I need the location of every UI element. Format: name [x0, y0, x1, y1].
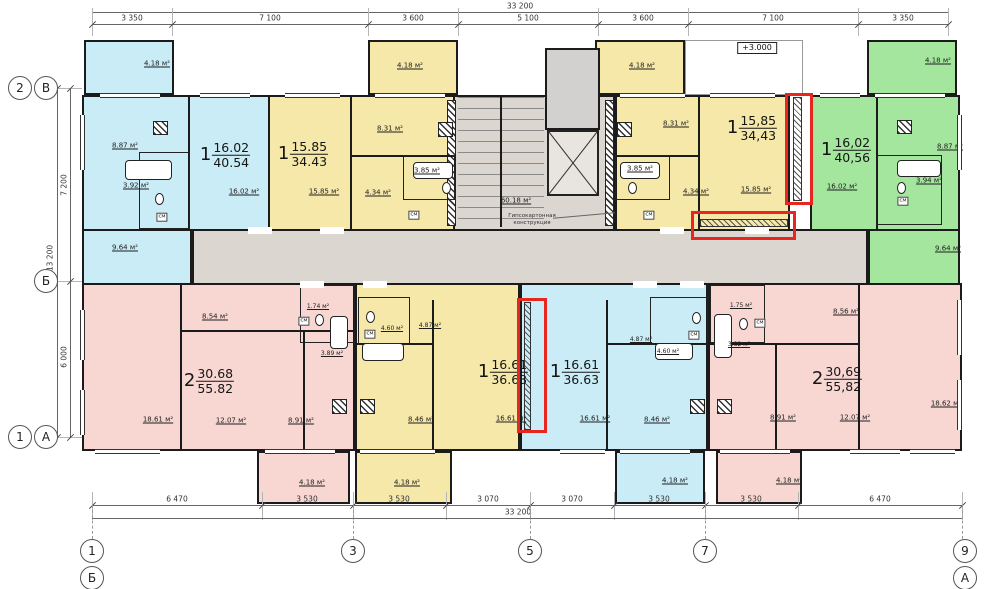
dim-top: 3 350 — [892, 14, 913, 22]
dim-bottom: 3 530 — [388, 495, 409, 503]
living-area: 16.61 — [562, 358, 600, 373]
apartment-label: 116.0240.54 — [200, 141, 250, 170]
window-marker — [80, 115, 85, 170]
door-opening — [633, 281, 657, 288]
closet-label: см — [897, 197, 908, 206]
room-area-label: 18.61 м² — [143, 417, 173, 424]
closet-label: см — [364, 330, 375, 339]
partition — [350, 95, 352, 231]
axis-bubble-a-bottom: А — [953, 566, 977, 589]
axis-bubble-b-bottom: Б — [80, 566, 104, 589]
rooms-count: 1 — [278, 145, 289, 163]
dim-bottom: 3 530 — [648, 495, 669, 503]
window-marker — [200, 93, 250, 98]
vent-box — [438, 122, 453, 137]
room-area-label: 8.54 м² — [202, 314, 228, 321]
balcony-north-blue — [84, 40, 174, 95]
window-marker — [720, 449, 790, 454]
dim-bottom: 3 070 — [561, 495, 582, 503]
elevator-cross-icon — [549, 132, 597, 194]
axis-bubble-2: 2 — [8, 76, 32, 100]
balcony-area-label: 4.18 м² — [397, 63, 423, 70]
dim-line-bottom-overall — [92, 518, 962, 519]
room-area-label: 15.85 м² — [741, 187, 771, 194]
rooms-count: 1 — [727, 119, 738, 137]
axis-bubble-v: В — [34, 76, 58, 100]
toilet-icon — [155, 193, 164, 205]
dim-line-top-segments — [92, 24, 948, 25]
closet-label: см — [688, 331, 699, 340]
axis-bubble-9: 9 — [953, 539, 977, 563]
dim-bottom: 3 530 — [740, 495, 761, 503]
highlight-rect-corridor — [691, 211, 796, 240]
vent-shaft-right — [605, 100, 614, 226]
room-area-label: 4.34 м² — [683, 189, 709, 196]
apartment-label: 230.6855.82 — [184, 367, 234, 396]
dim-left-lower: 6 000 — [60, 346, 68, 367]
window-marker — [957, 115, 962, 170]
closet-label: см — [156, 213, 167, 222]
garbage-room — [545, 48, 600, 130]
apartment-label: 116,0240,56 — [821, 136, 871, 165]
room-area-label: 8.91 м² — [770, 415, 796, 422]
living-area: 15.85 — [290, 140, 328, 155]
window-marker — [850, 449, 900, 454]
dim-left-upper: 7 200 — [60, 174, 68, 195]
vent-box — [360, 399, 375, 414]
toilet-icon — [628, 182, 637, 194]
room-area-label: 9.64 м² — [935, 246, 961, 253]
bathtub-icon — [362, 343, 404, 361]
room-area-label: 1.74 м² — [307, 304, 329, 310]
floor-plan: Мусоро-сборнаякамера 4.25 м² 60.18 м² Ги… — [0, 0, 1000, 589]
balcony-north-green — [867, 40, 957, 95]
partition — [303, 330, 305, 451]
bathtub-icon — [330, 316, 348, 349]
balcony-area-label: 4.18 м² — [925, 58, 951, 65]
room-area-label: 16.61 м² — [580, 416, 610, 423]
axis-bubble-1-left: 1 — [8, 425, 32, 449]
axis-bubble-7: 7 — [693, 539, 717, 563]
closet-label: см — [408, 211, 419, 220]
window-marker — [265, 449, 335, 454]
room-area-label: 4.60 м² — [657, 349, 679, 355]
room-area-label: 12.07 м² — [216, 418, 246, 425]
closet-label: см — [643, 211, 654, 220]
dim-line-left-segments — [70, 88, 71, 437]
axis-bubble-b-left: Б — [34, 269, 58, 293]
apartment-label: 115.8534.43 — [278, 140, 328, 169]
dim-bottom: 6 470 — [869, 495, 890, 503]
dim-bottom: 3 530 — [296, 495, 317, 503]
window-marker — [80, 390, 85, 435]
vent-box — [717, 399, 732, 414]
window-marker — [957, 300, 962, 355]
vent-box — [897, 120, 912, 134]
window-marker — [285, 93, 340, 98]
living-area: 30,69 — [824, 365, 862, 380]
axis-stem — [530, 505, 531, 539]
axis-stem — [962, 505, 963, 539]
room-area-label: 8.87 м² — [112, 143, 138, 150]
room-area-label: 3.89 м² — [321, 351, 343, 357]
room-area-label: 4.87 м² — [630, 337, 652, 343]
window-marker — [560, 449, 605, 454]
living-area: 16,02 — [833, 136, 871, 151]
rooms-count: 1 — [821, 141, 832, 159]
window-marker — [875, 93, 945, 98]
room-area-label: 3.85 м² — [627, 166, 653, 173]
room-area-label: 8.56 м² — [833, 309, 859, 316]
bathtub-icon — [897, 160, 941, 177]
dim-left-overall: 13 200 — [46, 245, 54, 271]
door-opening — [363, 281, 387, 288]
window-marker — [80, 310, 85, 360]
rooms-count: 2 — [812, 370, 823, 388]
room-area-label: 4.87 м² — [419, 323, 441, 329]
vent-box — [153, 121, 168, 135]
highlight-rect-wall-bottom — [517, 298, 547, 433]
balcony-area-label: 4.18 м² — [776, 478, 802, 485]
room-area-label: 8.31 м² — [377, 126, 403, 133]
balcony-area-label: 4.18 м² — [144, 61, 170, 68]
rooms-count: 1 — [200, 146, 211, 164]
toilet-icon — [692, 312, 701, 324]
window-marker — [375, 93, 445, 98]
balcony-area-label: 4.18 м² — [629, 63, 655, 70]
dim-line-bottom-segments — [92, 505, 962, 506]
dim-top: 7 100 — [259, 14, 280, 22]
living-area: 15,85 — [739, 114, 777, 129]
room-area-label: 9.64 м² — [112, 245, 138, 252]
room-area-label: 8.46 м² — [408, 417, 434, 424]
dim-top: 5 100 — [517, 14, 538, 22]
window-marker — [620, 93, 685, 98]
room-area-label: 1.75 м² — [730, 303, 752, 309]
toilet-icon — [442, 182, 451, 194]
dim-line-left-overall — [57, 88, 58, 437]
drywall-note: Гипсокартоннаяконструкция — [508, 213, 556, 227]
total-area: 40.54 — [212, 156, 250, 170]
dim-top: 7 100 — [762, 14, 783, 22]
partition — [180, 283, 182, 451]
axis-bubble-1-bottom: 1 — [80, 539, 104, 563]
bathtub-icon — [125, 160, 172, 180]
living-area: 30.68 — [196, 367, 234, 382]
apartment-top-left-blue-hall — [82, 229, 192, 285]
dim-bottom: 3 070 — [477, 495, 498, 503]
elevation-mark: +3.000 — [737, 42, 777, 54]
door-opening — [680, 281, 704, 288]
room-area-label: 3.85 м² — [414, 168, 440, 175]
total-area: 55,82 — [824, 380, 862, 394]
room-area-label: 8.46 м² — [644, 417, 670, 424]
partition — [775, 345, 777, 451]
room-area-label: 16.02 м² — [827, 184, 857, 191]
total-area: 40,56 — [833, 151, 871, 165]
door-opening — [660, 227, 684, 234]
rooms-count: 2 — [184, 372, 195, 390]
corridor-area-label: 60.18 м² — [501, 198, 531, 205]
axis-stem — [92, 505, 93, 539]
vent-box — [690, 399, 705, 414]
window-marker — [100, 93, 160, 98]
window-marker — [710, 93, 775, 98]
total-area: 34.43 — [290, 155, 328, 169]
door-opening — [320, 227, 344, 234]
room-area-label: 8.91 м² — [288, 418, 314, 425]
axis-stem — [353, 505, 354, 539]
rooms-count: 1 — [550, 363, 561, 381]
window-marker — [910, 449, 955, 454]
window-marker — [95, 449, 160, 454]
closet-label: см — [754, 319, 765, 328]
dim-top: 3 350 — [121, 14, 142, 22]
apartment-top-right-green-hall — [868, 229, 960, 285]
total-area: 34,43 — [739, 129, 777, 143]
room-area-label: 8.31 м² — [663, 121, 689, 128]
dim-top: 3 600 — [632, 14, 653, 22]
balcony-area-label: 4.18 м² — [394, 480, 420, 487]
dim-bottom-overall: 33 200 — [505, 508, 531, 516]
dim-top-overall: 33 200 — [507, 2, 533, 10]
window-marker — [360, 449, 435, 454]
axis-bubble-3: 3 — [341, 539, 365, 563]
axis-bubble-a-left: А — [34, 425, 58, 449]
living-area: 16.02 — [212, 141, 250, 156]
bathtub-icon — [714, 314, 732, 358]
toilet-icon — [366, 311, 375, 323]
axis-bubble-5: 5 — [518, 539, 542, 563]
vent-box — [332, 399, 347, 414]
vent-box — [617, 122, 632, 137]
total-area: 55.82 — [196, 382, 234, 396]
toilet-icon — [315, 314, 324, 326]
toilet-icon — [897, 182, 906, 194]
dim-top: 3 600 — [402, 14, 423, 22]
apartment-label: 116.6136.63 — [550, 358, 600, 387]
room-area-label: 16.02 м² — [229, 189, 259, 196]
room-area-label: 3.94 м² — [916, 178, 942, 185]
toilet-icon — [739, 318, 748, 330]
dim-bottom: 6 470 — [166, 495, 187, 503]
balcony-area-label: 4.18 м² — [662, 478, 688, 485]
total-area: 36.63 — [562, 373, 600, 387]
door-opening — [300, 281, 324, 288]
room-area-label: 15.85 м² — [309, 189, 339, 196]
highlight-rect-wall-top — [785, 93, 813, 205]
partition — [606, 300, 608, 451]
door-opening — [248, 227, 272, 234]
room-area-label: 3.82 м² — [728, 342, 750, 348]
room-area-label: 3.92 м² — [123, 183, 149, 190]
room-area-label: 12.07 м² — [840, 415, 870, 422]
window-marker — [620, 449, 690, 454]
window-marker — [957, 380, 962, 430]
closet-label: см — [298, 317, 309, 326]
room-area-label: 4.60 м² — [381, 326, 403, 332]
apartment-label: 230,6955,82 — [812, 365, 862, 394]
rooms-count: 1 — [478, 363, 489, 381]
balcony-area-label: 4.18 м² — [299, 480, 325, 487]
stair-divider — [500, 97, 502, 227]
apartment-label: 115,8534,43 — [727, 114, 777, 143]
axis-stem — [705, 505, 706, 539]
room-area-label: 4.34 м² — [365, 190, 391, 197]
window-marker — [820, 93, 860, 98]
